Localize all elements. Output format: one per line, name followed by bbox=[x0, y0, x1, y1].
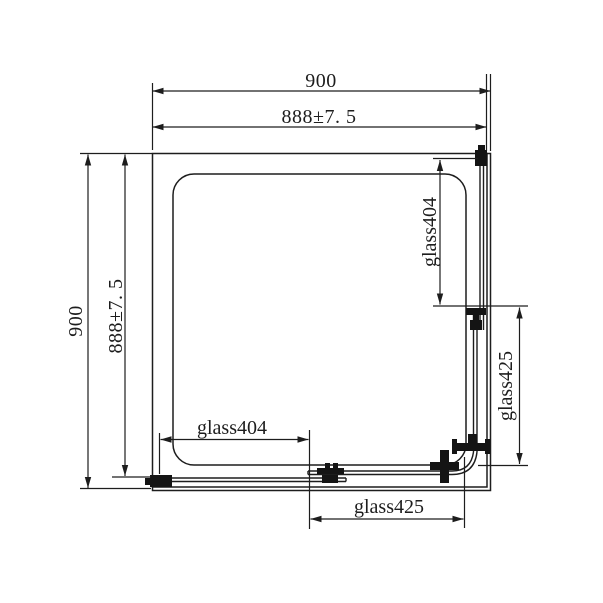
dim-label-left-adjustable: 888±7. 5 bbox=[105, 279, 127, 354]
technical-drawing-page: 900 888±7. 5 900 888±7. 5 glass404 glass… bbox=[0, 0, 603, 603]
dim-label-top-adjustable: 888±7. 5 bbox=[282, 106, 357, 128]
right-corner-roller-bracket bbox=[452, 434, 490, 454]
bottom-glass-404-panel bbox=[160, 478, 346, 482]
shower-enclosure-plan-drawing: 900 888±7. 5 900 888±7. 5 glass404 glass… bbox=[0, 0, 603, 603]
top-wall-bracket bbox=[475, 145, 487, 166]
dim-label-left-overall: 900 bbox=[65, 305, 87, 337]
dim-label-top-overall: 900 bbox=[305, 70, 337, 92]
label-bottom-left-glass: glass404 bbox=[197, 417, 267, 439]
label-bottom-right-glass: glass425 bbox=[354, 496, 424, 518]
bottom-corner-roller-bracket bbox=[430, 450, 459, 483]
label-right-upper-glass: glass404 bbox=[419, 197, 441, 267]
label-right-lower-glass: glass425 bbox=[495, 351, 517, 421]
dim-bottom-glass404 bbox=[160, 430, 310, 529]
right-glass-404-panel bbox=[480, 155, 484, 330]
bottom-panel-joint-bracket bbox=[317, 463, 344, 483]
